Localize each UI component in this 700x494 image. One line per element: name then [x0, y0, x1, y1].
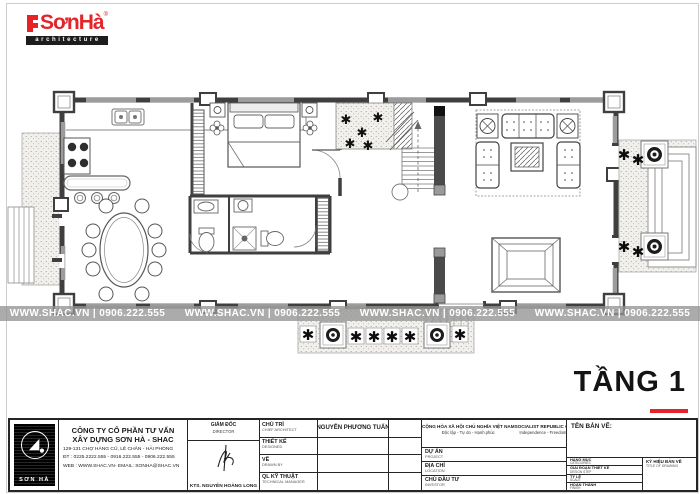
drawing-name-label: TÊN BẢN VẼ:: [567, 420, 696, 430]
registered-mark: ®: [104, 12, 108, 18]
drawing-name-cell: TÊN BẢN VẼ: HẠNG MỤC CATEGORIES GIAI ĐOẠ…: [567, 420, 696, 490]
bar-counter: [64, 176, 130, 190]
director-signature: [188, 440, 259, 477]
personnel-row-value: NGUYỄN PHƯƠNG TUẤN: [318, 420, 388, 438]
svg-text:✱: ✱: [632, 243, 645, 261]
sonha-logo-mark-icon: [26, 13, 38, 34]
company-logo-cell: SƠN HÀ: [10, 420, 59, 490]
svg-text:✱: ✱: [618, 238, 631, 256]
hall-closet: [318, 198, 329, 251]
company-web: WEB : WWW.SHAC.VN- EMAIL: SONHA@SHAC.VN: [63, 464, 185, 470]
svg-text:✱: ✱: [345, 137, 356, 152]
brand-name: SơnHà: [40, 11, 104, 34]
project-row: DỰ ÁN PROJECT: [422, 448, 566, 462]
company-info-cell: CÔNG TY CỔ PHẦN TƯ VẤN XÂY DỰNG SƠN HÀ -…: [59, 420, 188, 490]
svg-text:✱: ✱: [404, 328, 417, 346]
drawing-field: HOÀN THÀNH FINISH: [567, 483, 642, 490]
svg-text:✱: ✱: [386, 328, 399, 346]
personnel-row-value: [318, 473, 388, 491]
director-label-vi: GIÁM ĐỐC: [211, 422, 237, 428]
drawing-field: TỶ LỆ SCALE: [567, 475, 642, 483]
drawing-code-cell: KÝ HIỆU BẢN VẼ TITLE OF DRAWING: [643, 458, 696, 490]
bar-stools: [75, 193, 120, 204]
brand-tagline: architecture: [26, 36, 108, 45]
drawing-field: GIAI ĐOẠN THIẾT KẾ DESIGN STEP: [567, 466, 642, 474]
personnel-values-column: NGUYỄN PHƯƠNG TUẤN: [318, 420, 389, 490]
indoor-garden-bed: ✱✱✱ ✱✱: [336, 103, 412, 154]
floor-title: TẦNG 1: [574, 366, 686, 399]
watermark-band: WWW.SHAC.VN | 0906.222.555 WWW.SHAC.VN |…: [0, 306, 700, 321]
red-underline: [650, 409, 688, 413]
investor-row: CHỦ ĐẦU TƯ INVESTOR: [422, 476, 566, 490]
company-name-line1: CÔNG TY CỔ PHẦN TƯ VẤN: [59, 426, 187, 435]
company-address: 129-131 CHỢ HÀNG CŨ, LÊ CHÂN - HẢI PHÒNG: [63, 447, 185, 453]
director-name: KTS. NGUYỄN HOÀNG LONG: [188, 484, 259, 489]
personnel-row-label: QL KỸ THUẬT TECHNICAL MANAGER: [260, 473, 317, 491]
director-label-en: DIRECTOR: [188, 429, 259, 435]
wardrobe: [193, 110, 204, 194]
sonha-architecture-logo: SơnHà® architecture: [26, 12, 108, 45]
drawing-field: HẠNG MỤC CATEGORIES: [567, 458, 642, 466]
republic-header: CỘNG HÒA XÃ HỘI CHỦ NGHĨA VIỆT NAM Độc l…: [422, 420, 566, 448]
svg-text:✱: ✱: [341, 113, 352, 128]
svg-text:✱: ✱: [302, 326, 315, 344]
stair-wall: [434, 106, 445, 195]
svg-text:✱: ✱: [373, 111, 384, 126]
kitchen-sink: [112, 109, 144, 125]
company-logo-circle-icon: [21, 431, 49, 459]
floor-plan-drawing: ✱✱✱ ✱✱: [0, 78, 700, 368]
svg-text:✱: ✱: [363, 139, 374, 154]
coffee-table: [511, 143, 543, 171]
svg-text:✱: ✱: [632, 151, 645, 169]
bed: [228, 103, 300, 167]
signature-column: [389, 420, 422, 490]
republic-en-line1: SOCIALIST REPUBLIC OF VIET NAM: [515, 424, 567, 430]
drawing-sheet: SơnHà® architecture: [0, 0, 700, 494]
center-table: [492, 238, 560, 292]
personnel-row-value: [318, 438, 388, 456]
director-cell: GIÁM ĐỐC DIRECTOR KTS. NGUYỄN HOÀNG LONG: [188, 420, 260, 490]
company-phone: ĐT : 0225.2222.555 - 0916.222.555 - 0906…: [63, 455, 185, 461]
personnel-row-label: VẼ DRAWN BY: [260, 455, 317, 473]
personnel-labels-column: CHỦ TRÌ CHIEF ARCHITECT THIẾT KẾ DESIGNE…: [260, 420, 318, 490]
stove: [64, 138, 90, 174]
watermark-text: WWW.SHAC.VN | 0906.222.555: [185, 308, 340, 319]
svg-text:✱: ✱: [618, 146, 631, 164]
republic-vi-line1: CỘNG HÒA XÃ HỘI CHỦ NGHĨA VIỆT NAM: [422, 424, 515, 430]
svg-text:✱: ✱: [368, 328, 381, 346]
hall-lower-wall: [434, 248, 445, 303]
location-row: ĐỊA CHỈ LOCATION: [422, 462, 566, 476]
company-logo-text: SƠN HÀ: [14, 477, 55, 483]
company-name-line2: XÂY DỰNG SƠN HÀ - SHAC: [59, 435, 187, 444]
watermark-text: WWW.SHAC.VN | 0906.222.555: [360, 308, 515, 319]
republic-en-line2: Independence - Freedom - Happiness: [515, 430, 567, 435]
right-porch: ✱✱ ✱✱: [618, 140, 696, 272]
personnel-row-value: [318, 455, 388, 473]
svg-text:✱: ✱: [454, 326, 467, 344]
republic-vi-line2: Độc lập - Tự do - Hạnh phúc: [422, 430, 515, 435]
company-logo-box: SƠN HÀ: [14, 424, 55, 486]
watermark-text: WWW.SHAC.VN | 0906.222.555: [535, 308, 690, 319]
personnel-row-label: CHỦ TRÌ CHIEF ARCHITECT: [260, 420, 317, 438]
drawing-code-label-en: TITLE OF DRAWING: [646, 464, 696, 468]
title-block: SƠN HÀ CÔNG TY CỔ PHẦN TƯ VẤN XÂY DỰNG S…: [8, 418, 698, 492]
watermark-text: WWW.SHAC.VN | 0906.222.555: [10, 308, 165, 319]
personnel-row-label: THIẾT KẾ DESIGNED: [260, 438, 317, 456]
drawing-fields-table: HẠNG MỤC CATEGORIES GIAI ĐOẠN THIẾT KẾ D…: [567, 457, 696, 490]
svg-text:✱: ✱: [350, 328, 363, 346]
republic-cell: CỘNG HÒA XÃ HỘI CHỦ NGHĨA VIỆT NAM Độc l…: [422, 420, 567, 490]
